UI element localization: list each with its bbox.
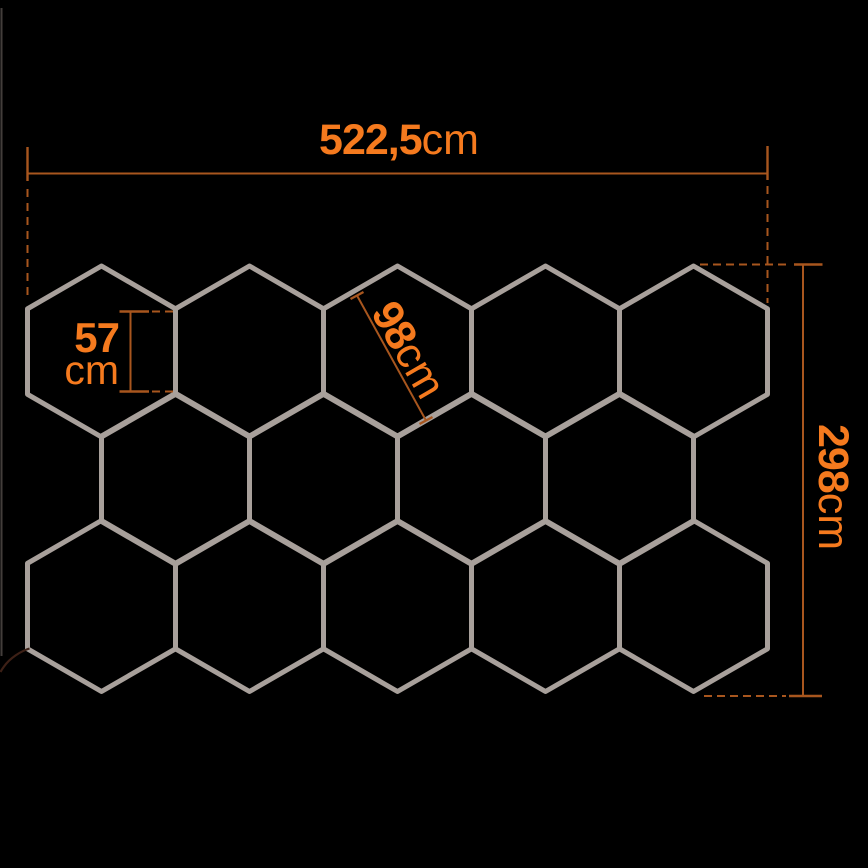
hexagon-cell <box>546 393 694 564</box>
power-cord <box>1 649 30 673</box>
hexagon-cell <box>176 266 324 437</box>
hexagon-dimension-diagram: 522,5cm 298cm 57 cm 98cm <box>0 0 868 868</box>
hex-side-dimension: 57 cm <box>64 312 176 394</box>
hexagon-cell <box>28 521 176 692</box>
hex-width-dimension-label: 98cm <box>362 293 455 406</box>
hexagon-cell <box>324 521 472 692</box>
hexagon-cell <box>620 266 768 437</box>
hexagon-cell <box>472 521 620 692</box>
hexagon-cell <box>176 521 324 692</box>
hexagon-cell <box>102 393 250 564</box>
hex-side-unit: cm <box>64 347 119 393</box>
height-dimension: 298cm <box>700 265 857 697</box>
hexagon-cell <box>398 393 546 564</box>
width-unit: cm <box>422 116 479 164</box>
hexagon-cell <box>620 521 768 692</box>
hexagon-cell <box>250 393 398 564</box>
height-unit: cm <box>809 493 857 550</box>
width-dimension-label: 522,5cm <box>319 116 479 164</box>
height-dimension-label: 298cm <box>809 424 857 550</box>
height-value: 298 <box>809 424 857 493</box>
hex-width-dimension: 98cm <box>351 292 455 424</box>
width-value: 522,5 <box>319 116 422 164</box>
width-dimension: 522,5cm <box>28 116 768 303</box>
diagram-canvas: 522,5cm 298cm 57 cm 98cm <box>0 0 868 868</box>
hexagon-cell <box>472 266 620 437</box>
